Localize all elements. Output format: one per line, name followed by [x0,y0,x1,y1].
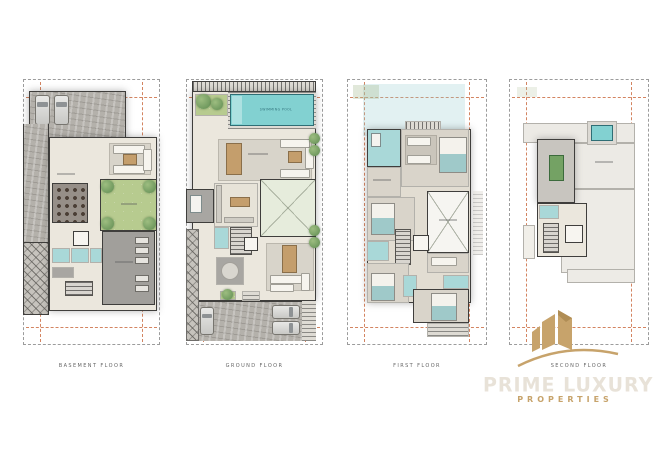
lift [565,225,583,243]
inner-courtyard [260,179,316,237]
car-ramp [23,124,49,242]
sofa [280,169,310,178]
bed-blanket [432,306,456,320]
side-walkway [302,301,316,341]
staircase [65,281,93,296]
gym-equipment [135,285,149,292]
setback-line [26,327,157,328]
logo-tower [542,314,555,350]
ground-floor-plan: SWIMMING POOL [186,79,323,347]
staircase [543,223,559,253]
room-label-mark [595,161,613,163]
sofa [407,155,431,164]
tree [101,217,114,230]
room-label-mark [373,179,391,181]
second-floor-label: SECOND FLOOR [509,363,649,369]
lift [244,237,258,251]
sofa [270,284,294,292]
side-ramp [186,229,199,341]
tree [211,98,223,110]
roof-terrace-edge [567,269,635,283]
double-height-void [427,191,469,253]
sofa [301,273,310,291]
store-room [52,267,74,278]
setback-line [512,97,646,98]
lift [73,231,89,246]
terrace [427,323,469,337]
coffee-table [123,154,137,165]
roof-terrace-upper [573,143,635,189]
jacuzzi [591,125,613,141]
logo-tower [532,326,540,352]
kitchen-counter [224,217,254,223]
sauna-room [90,248,102,263]
bed [371,273,395,301]
pool-label: SWIMMING POOL [252,108,300,112]
kitchen-island [230,197,250,207]
bathroom [367,241,389,261]
lift [413,235,429,251]
bathroom [539,205,559,219]
sofa [270,275,302,284]
car [200,307,214,335]
tree [309,145,320,156]
bed-small [190,195,202,213]
dressing-room [367,167,401,197]
sofa [113,145,145,154]
bed-blanket [440,154,466,172]
car [35,95,50,125]
tree [309,133,320,144]
side-ledge [473,191,483,255]
gym-equipment [135,237,149,244]
room-label-mark [57,173,75,175]
room-label-mark [121,203,137,205]
pool-steps [232,96,242,124]
car [272,305,300,319]
sofa [113,165,145,174]
tree [309,237,320,248]
sofa [431,257,457,266]
steam-room [71,248,89,263]
gym-equipment [135,247,149,254]
roof-ledge [523,225,535,259]
bathtub [371,133,381,147]
planter-below-ghost [517,87,537,97]
bed [431,293,457,321]
first-floor-plan [347,79,487,347]
basement-floor-label: BASEMENT FLOOR [23,363,160,369]
car-ramp-slope [23,242,49,315]
spa-room [52,248,70,263]
watermark-brand-subtitle: PROPERTIES [505,395,625,404]
sofa [143,149,152,171]
coffee-table [288,151,302,163]
tree [222,289,233,300]
kitchen-counter [216,185,222,223]
bed [371,203,395,235]
bathroom [443,275,469,289]
floor-plans-sheet: SWIMMING POOL [0,0,668,452]
planter-below-ghost [353,85,379,99]
bed [439,137,467,173]
sofa [407,137,431,146]
bed-blanket [372,218,394,234]
cinema-room [52,183,88,223]
gym-equipment [135,275,149,282]
staircase [395,229,411,265]
tree [309,225,320,236]
powder-room [214,227,229,249]
room-label-mark [439,219,457,221]
setback-line [526,82,527,342]
room-label-mark [248,153,268,155]
basement-floor-plan [23,79,160,347]
gym-equipment [135,257,149,264]
billiard-table [549,155,564,181]
car [54,95,69,125]
car [272,321,300,335]
tree [196,94,211,109]
first-floor-label: FIRST FLOOR [347,363,487,369]
bed-blanket [372,286,394,300]
entry-steps [242,291,260,301]
foyer-rug [221,262,239,280]
room-label-mark [115,261,133,263]
dining-table [226,143,242,175]
majlis-dining-table [282,245,297,273]
tree [143,180,156,193]
watermark-brand-name: PRIME LUXURY [483,373,643,396]
tree [101,180,114,193]
tree [143,217,156,230]
ground-floor-label: GROUND FLOOR [186,363,323,369]
